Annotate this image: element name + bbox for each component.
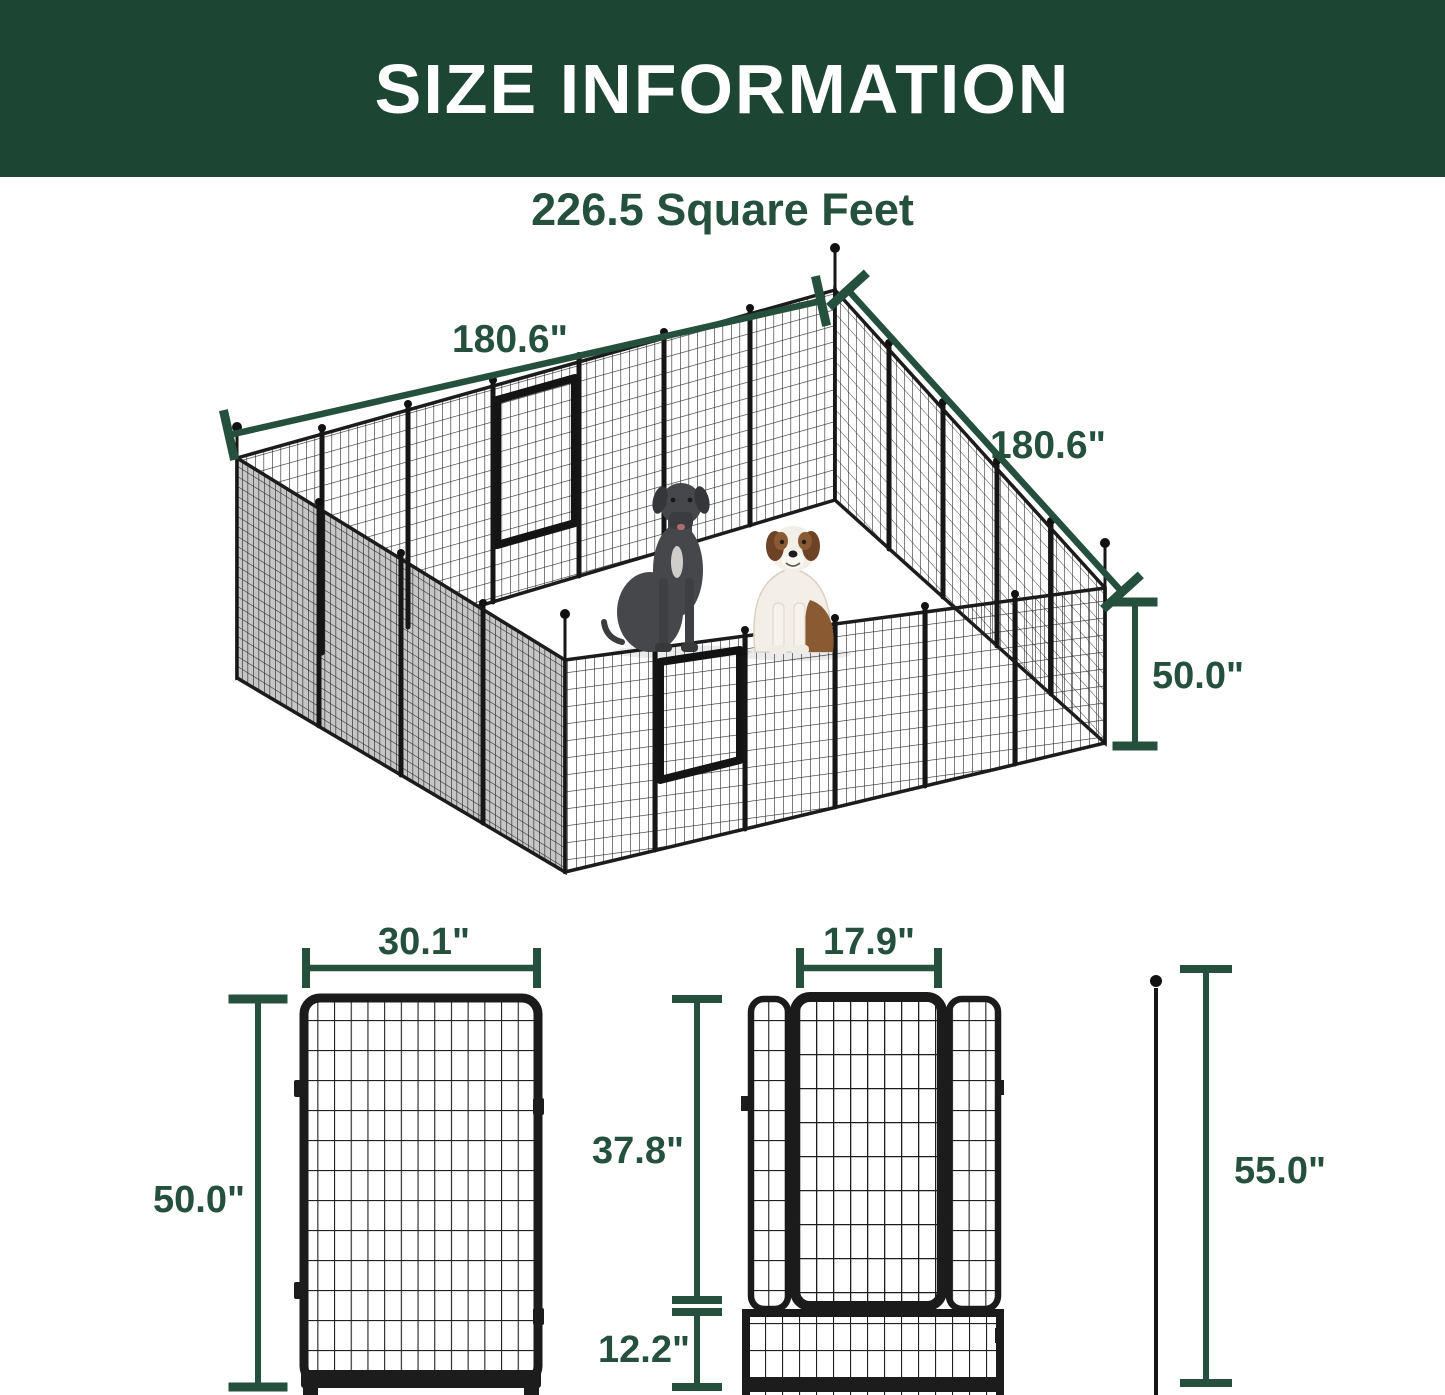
stake-height-label: 55.0" <box>1234 1150 1326 1192</box>
playpen-isometric-view: 180.6" 180.6" 50.0" <box>224 243 1244 872</box>
gate-lower-height-label: 12.2" <box>598 1329 690 1371</box>
stake-height-dimension: 55.0" <box>1184 969 1326 1383</box>
panel-mesh <box>304 998 538 1382</box>
height-dimension-label: 50.0" <box>1152 655 1244 697</box>
gate-upper-height-dimension: 37.8" <box>592 999 718 1300</box>
gate-left-strip <box>751 999 788 1309</box>
stake-ball-top <box>1150 975 1162 987</box>
width-dimension-label: 180.6" <box>452 318 568 361</box>
isometric-height-dimension: 50.0" <box>1117 602 1244 746</box>
gate-right-strip <box>949 999 998 1309</box>
panel-width-dimension: 30.1" <box>306 921 537 984</box>
depth-dimension-label: 180.6" <box>990 424 1106 467</box>
gate-upper-height-label: 37.8" <box>592 1130 684 1172</box>
gate-lower-height-dimension: 12.2" <box>598 1312 718 1387</box>
panel-width-label: 30.1" <box>378 921 470 963</box>
size-information-infographic: SIZE INFORMATION 226.5 Square Feet <box>0 0 1445 1395</box>
panel-height-label: 50.0" <box>153 1179 245 1221</box>
gate-front-view: 17.9" 37.8" 12.2" <box>592 921 1004 1395</box>
gate-width-label: 17.9" <box>823 921 915 963</box>
panel-height-dimension: 50.0" <box>153 999 283 1387</box>
ground-stake-view: 55.0" <box>1150 969 1326 1395</box>
panel-front-view: 30.1" 50.0" <box>153 921 544 1395</box>
gate-width-dimension: 17.9" <box>800 921 938 984</box>
diagram-canvas: 180.6" 180.6" 50.0" 3 <box>0 0 1445 1395</box>
gate-door <box>795 997 942 1306</box>
